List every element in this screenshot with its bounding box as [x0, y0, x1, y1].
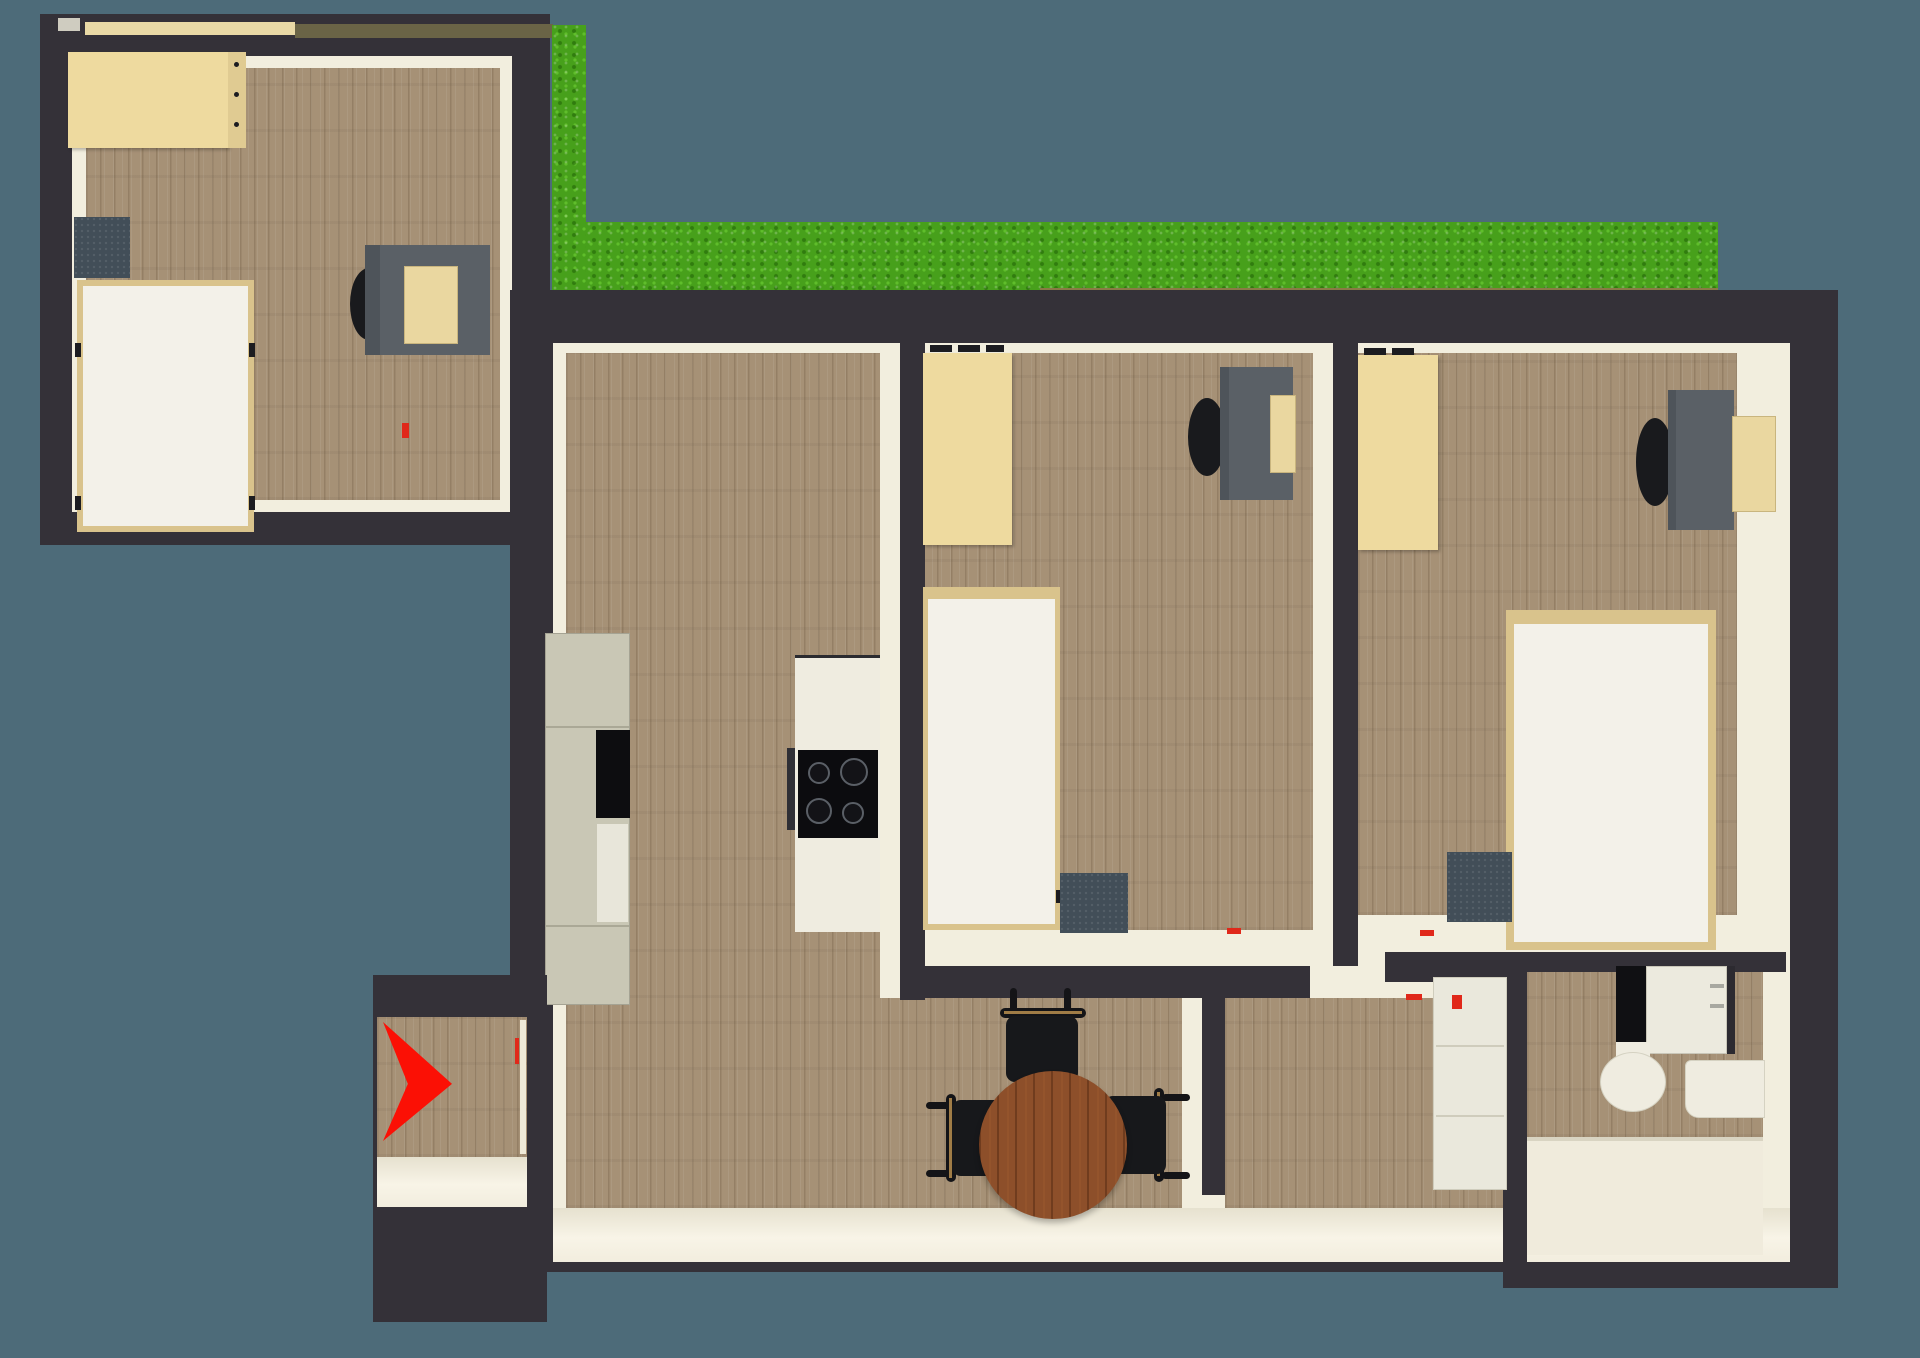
window-blind: [1392, 348, 1414, 355]
burner: [808, 762, 830, 784]
toilet: [1600, 1052, 1666, 1112]
burner: [842, 802, 864, 824]
computer: [1270, 395, 1296, 473]
bed-foot: [249, 496, 255, 510]
sink: [1685, 1060, 1765, 1118]
entrance-floor-band: [377, 1157, 527, 1207]
wardrobe: [68, 52, 228, 148]
grass-strip-vertical: [552, 25, 586, 292]
computer: [404, 266, 458, 344]
entrance-door-edge: [520, 1020, 526, 1154]
bed: [1506, 610, 1716, 950]
window-blind: [986, 345, 1004, 352]
bed: [77, 280, 254, 532]
desk: [1668, 390, 1734, 530]
floor-plan: [0, 0, 1920, 1358]
bed: [923, 587, 1060, 930]
dining-chair-leg: [1162, 1094, 1190, 1101]
nightstand: [1447, 852, 1512, 922]
door-marker: [1227, 928, 1241, 934]
wardrobe-knob: [234, 62, 239, 67]
dresser-drawer-line: [1436, 1115, 1504, 1117]
door-marker: [1420, 930, 1434, 936]
nightstand: [74, 217, 130, 278]
cabinet-handle: [1710, 1004, 1724, 1008]
wardrobe-knob: [234, 92, 239, 97]
bathroom-bottom-wall: [1503, 1262, 1838, 1288]
window-sill: [85, 22, 295, 35]
cooktop: [798, 750, 878, 838]
oven-handle: [787, 748, 795, 830]
dresser-drawer-line: [1436, 1045, 1504, 1047]
wall-dining-hallway: [1202, 966, 1225, 1195]
nightstand: [1060, 873, 1128, 933]
cabinet-handle: [1710, 984, 1724, 988]
wardrobe: [923, 353, 1012, 545]
washing-machine: [1616, 966, 1646, 1052]
grass-band-horizontal: [586, 222, 1718, 292]
window-blind: [930, 345, 952, 352]
wall-bedroom2-bedroom3: [1333, 343, 1358, 966]
bed-foot: [249, 343, 255, 357]
window-blind: [1364, 348, 1386, 355]
bathroom-cabinet: [1646, 966, 1727, 1054]
wall-below-bedroom2: [900, 966, 1310, 998]
bed-foot: [75, 343, 81, 357]
wall-shelf: [1732, 416, 1776, 512]
wall-kitchen-bedroom2: [900, 343, 925, 1000]
kitchen-tall-cabinet: [545, 633, 630, 1005]
wall-corner-chip: [58, 18, 80, 31]
bathtub: [1527, 1137, 1763, 1255]
dining-chair-leg: [1162, 1172, 1190, 1179]
wardrobe-knob: [234, 122, 239, 127]
door-shadow: [1727, 966, 1735, 1054]
fridge: [597, 824, 628, 922]
oven: [596, 730, 630, 818]
bed-foot: [75, 496, 81, 510]
wall-top-trim: [295, 24, 553, 38]
door-marker: [402, 423, 409, 438]
door-marker: [1406, 994, 1422, 1000]
window-blind: [958, 345, 980, 352]
wardrobe: [1358, 355, 1438, 550]
burner: [840, 758, 868, 786]
door-marker: [1452, 995, 1462, 1009]
dining-chair-armrest: [1004, 1011, 1082, 1014]
dining-table: [979, 1071, 1127, 1219]
door-marker: [515, 1038, 519, 1064]
cabinet-divider: [546, 726, 629, 728]
dresser: [1433, 977, 1507, 1190]
burner: [806, 798, 832, 824]
cabinet-divider: [546, 925, 629, 927]
